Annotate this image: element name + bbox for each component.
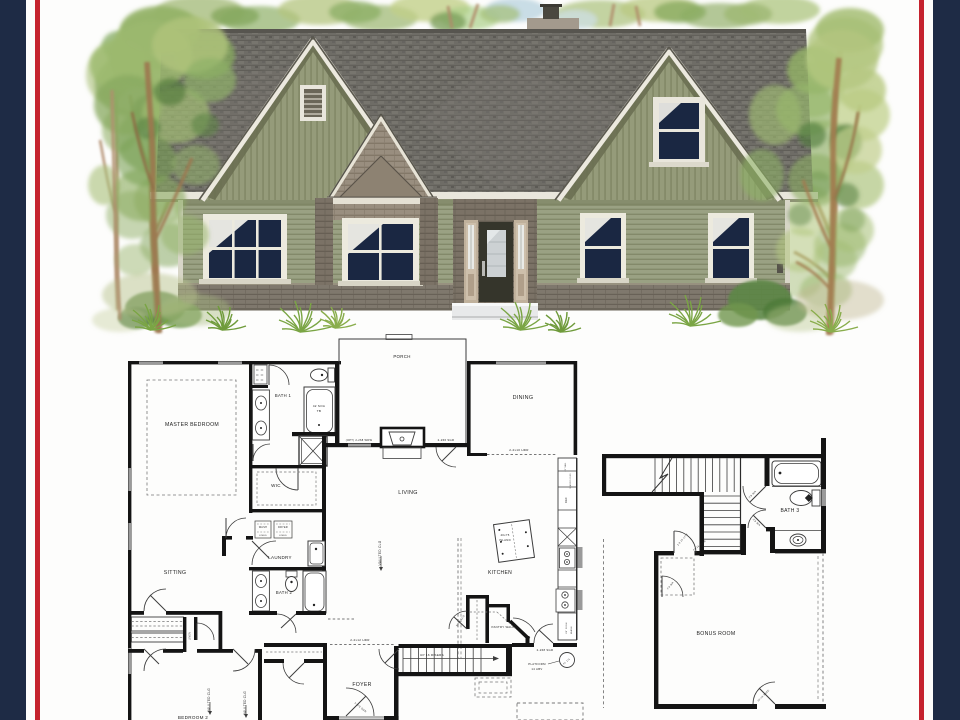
svg-text:WIC: WIC xyxy=(271,483,281,488)
svg-text:KITCHEN: KITCHEN xyxy=(488,570,512,576)
svg-text:BEDROOM 2: BEDROOM 2 xyxy=(178,715,208,720)
svg-text:REF: REF xyxy=(564,497,568,503)
svg-text:2-268 SGR: 2-268 SGR xyxy=(537,648,554,652)
svg-text:LINEN: LINEN xyxy=(189,632,192,640)
svg-text:40x75: 40x75 xyxy=(500,533,509,537)
svg-text:DINING: DINING xyxy=(513,395,534,401)
svg-text:LIVING: LIVING xyxy=(398,490,417,496)
svg-text:(OPT) 2-268 WDW: (OPT) 2-268 WDW xyxy=(346,438,373,442)
svg-text:PLATFORM: PLATFORM xyxy=(528,662,546,666)
svg-text:LINES: LINES xyxy=(279,535,287,537)
svg-text:MASTER BEDROOM: MASTER BEDROOM xyxy=(165,422,219,428)
svg-text:PORCH: PORCH xyxy=(393,354,410,359)
svg-text:PANTRY WALK: PANTRY WALK xyxy=(492,625,515,629)
svg-text:WASH: WASH xyxy=(259,526,267,529)
svg-text:STACKED OVEN: STACKED OVEN xyxy=(569,473,572,489)
svg-text:BATH 1: BATH 1 xyxy=(275,393,292,398)
svg-text:FOYER: FOYER xyxy=(352,682,371,688)
svg-text:2-2x10 HDR: 2-2x10 HDR xyxy=(509,448,529,452)
svg-text:UP 16 RISERS: UP 16 RISERS xyxy=(420,653,444,657)
svg-text:ISLAND: ISLAND xyxy=(499,538,511,542)
svg-text:SHOWER: SHOWER xyxy=(306,432,319,436)
svg-text:VAULTED CLG: VAULTED CLG xyxy=(243,691,247,715)
svg-text:42 SOA: 42 SOA xyxy=(313,404,325,408)
svg-text:TB: TB xyxy=(317,409,321,413)
svg-text:BONUS ROOM: BONUS ROOM xyxy=(696,631,735,637)
svg-text:BATH 3: BATH 3 xyxy=(781,508,800,514)
svg-text:LAUNDRY: LAUNDRY xyxy=(268,555,292,560)
svg-text:WASH: WASH xyxy=(570,626,573,634)
svg-text:LINES: LINES xyxy=(259,535,267,537)
svg-text:SITTING: SITTING xyxy=(164,570,187,576)
svg-text:14 ABV: 14 ABV xyxy=(531,667,542,671)
svg-text:DRYER: DRYER xyxy=(278,526,288,529)
svg-text:2-266 SGR: 2-266 SGR xyxy=(438,438,455,442)
svg-text:2-2x12 HDR: 2-2x12 HDR xyxy=(350,638,370,642)
svg-text:24" DISH: 24" DISH xyxy=(566,622,568,634)
svg-text:42" TALL: 42" TALL xyxy=(564,462,567,472)
svg-text:VAULTED CLG: VAULTED CLG xyxy=(378,540,382,565)
svg-text:VAULTED CLG: VAULTED CLG xyxy=(207,688,211,712)
